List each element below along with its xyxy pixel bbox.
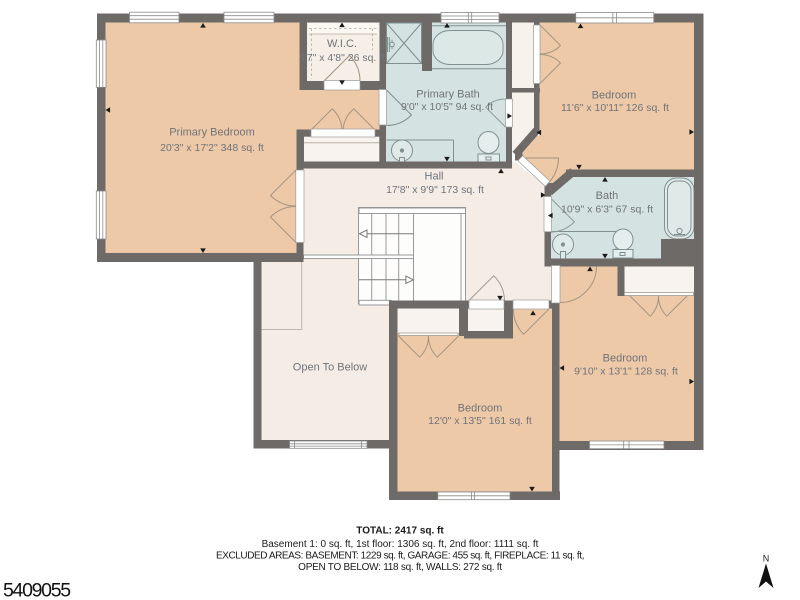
svg-text:Hall: Hall bbox=[425, 171, 444, 183]
svg-text:TOTAL: 2417 sq. ft: TOTAL: 2417 sq. ft bbox=[356, 526, 444, 537]
svg-text:N: N bbox=[763, 554, 770, 564]
svg-text:Bedroom: Bedroom bbox=[603, 353, 648, 365]
svg-text:9'0" x 10'5" 94 sq. ft: 9'0" x 10'5" 94 sq. ft bbox=[401, 101, 493, 113]
svg-text:10'9" x 6'3" 67 sq. ft: 10'9" x 6'3" 67 sq. ft bbox=[561, 204, 653, 216]
svg-text:Bedroom: Bedroom bbox=[458, 403, 503, 415]
svg-text:5'7" x 4'8" 26 sq. ft: 5'7" x 4'8" 26 sq. ft bbox=[299, 52, 385, 64]
svg-text:Bath: Bath bbox=[596, 190, 619, 202]
svg-text:Bedroom: Bedroom bbox=[592, 90, 637, 102]
svg-text:Open To Below: Open To Below bbox=[293, 362, 367, 374]
svg-text:OPEN TO BELOW: 118 sq. ft, WAL: OPEN TO BELOW: 118 sq. ft, WALLS: 272 sq… bbox=[298, 562, 502, 573]
svg-text:9'10" x 13'1" 128 sq. ft: 9'10" x 13'1" 128 sq. ft bbox=[574, 366, 678, 378]
svg-text:20'3" x 17'2" 348 sq. ft: 20'3" x 17'2" 348 sq. ft bbox=[160, 142, 264, 154]
svg-text:11'6" x 10'11" 126 sq. ft: 11'6" x 10'11" 126 sq. ft bbox=[561, 102, 669, 114]
svg-text:W.I.C.: W.I.C. bbox=[327, 38, 357, 50]
svg-text:17'8" x 9'9" 173 sq. ft: 17'8" x 9'9" 173 sq. ft bbox=[386, 184, 484, 196]
svg-text:Primary Bedroom: Primary Bedroom bbox=[169, 127, 255, 139]
svg-text:Basement 1: 0 sq. ft, 1st floo: Basement 1: 0 sq. ft, 1st floor: 1306 sq… bbox=[262, 539, 539, 550]
svg-text:Primary Bath: Primary Bath bbox=[416, 89, 480, 101]
svg-text:5409055: 5409055 bbox=[3, 580, 71, 600]
svg-text:12'0" x 13'5" 161 sq. ft: 12'0" x 13'5" 161 sq. ft bbox=[428, 415, 532, 427]
svg-text:EXCLUDED AREAS: BASEMENT: 1229: EXCLUDED AREAS: BASEMENT: 1229 sq. ft, G… bbox=[216, 551, 584, 562]
